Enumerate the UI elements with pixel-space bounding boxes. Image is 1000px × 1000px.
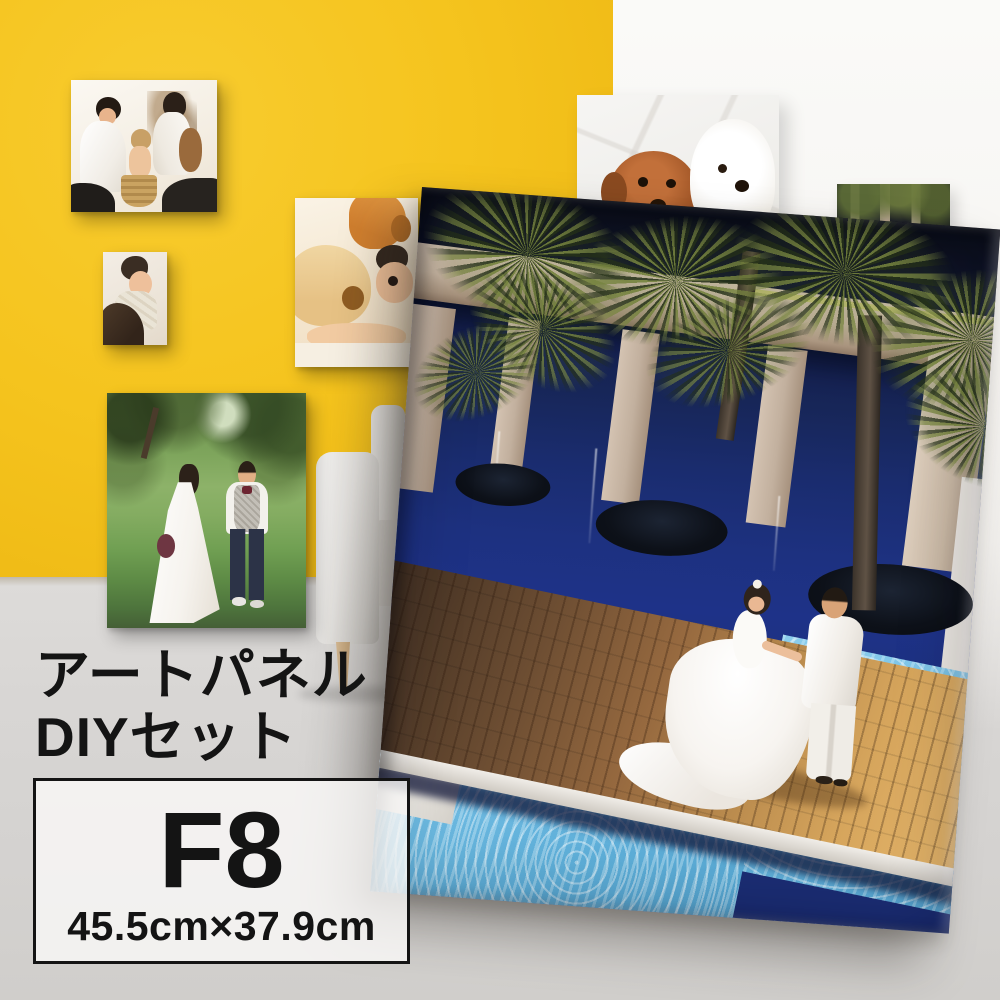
wedding-park-photo-canvas — [107, 393, 306, 628]
bouquet — [157, 534, 175, 558]
family-photo-canvas — [71, 80, 217, 212]
large-resort-wedding-canvas — [370, 187, 1000, 934]
rock-planter — [454, 460, 552, 509]
poodle-eye — [638, 177, 648, 186]
groom-sneaker — [232, 597, 246, 605]
father-white-shirt — [80, 121, 127, 192]
white-sheet — [295, 343, 418, 367]
baby-body — [129, 146, 151, 178]
groom-bowtie — [242, 486, 252, 494]
product-banner: アートパネル DIYセット F8 45.5cm×37.9cm — [0, 0, 1000, 1000]
bride-white-dress — [143, 482, 227, 623]
dog-ear — [391, 215, 411, 242]
groom-sneaker — [250, 600, 264, 608]
wicker-basket — [121, 175, 158, 207]
size-info-box: F8 45.5cm×37.9cm — [33, 778, 410, 964]
groom-navy-pants — [230, 529, 264, 600]
dark-pants-right — [162, 178, 217, 212]
baby-and-dog-photo-canvas — [295, 198, 418, 367]
caption-line-art-panel: アートパネル — [35, 645, 368, 707]
teddy-bear — [179, 128, 202, 173]
sofa-armrest — [316, 452, 379, 644]
groom-shoe — [833, 779, 847, 787]
poodle-eye — [666, 179, 676, 188]
dog-paw — [342, 286, 364, 310]
size-code: F8 — [158, 796, 284, 904]
bride-torso — [733, 610, 767, 668]
tree-trunk — [141, 407, 159, 459]
groom-white-pants — [806, 703, 856, 782]
rock-planter — [594, 496, 730, 561]
dog-body — [295, 245, 371, 326]
caption-line-diy-set: DIYセット — [35, 707, 368, 769]
size-dimensions: 45.5cm×37.9cm — [67, 906, 376, 947]
baby-photo-canvas — [103, 252, 167, 345]
groom-white-suit — [800, 613, 865, 713]
product-caption: アートパネル DIYセット — [35, 645, 368, 768]
white-dog-nose — [735, 180, 749, 192]
